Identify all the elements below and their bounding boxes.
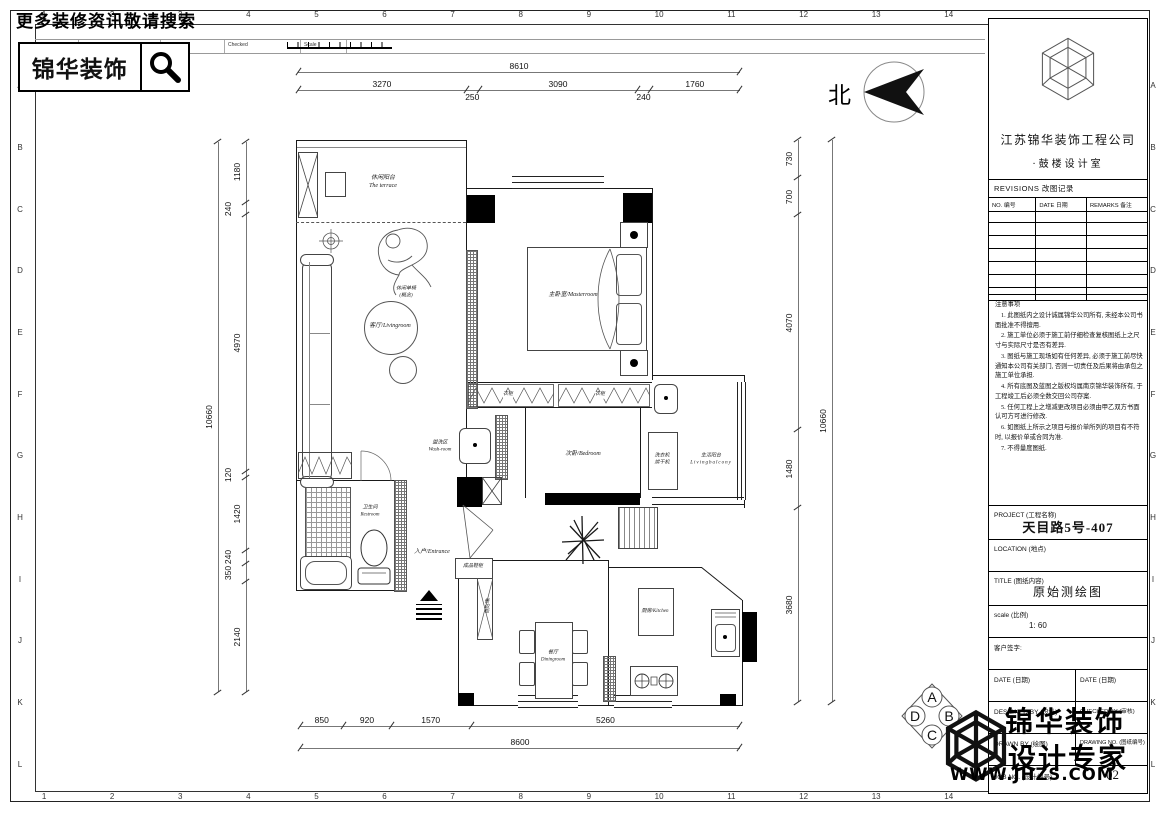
dimension-value: 5260 — [596, 715, 615, 725]
grid-ref-label: L — [1151, 760, 1155, 769]
note-item: 3. 图纸与施工现场如有任何差异, 必须于施工前尽快通知本公司有关部门, 否则一… — [995, 352, 1143, 381]
label-wardrobe: 衣柜 — [595, 392, 605, 399]
grid-ref-label: 9 — [587, 792, 591, 804]
wall-line — [466, 382, 652, 383]
dimension-value: 1180 — [232, 163, 242, 181]
dimension-segment: 1570 — [391, 720, 471, 732]
path — [715, 613, 736, 617]
grid-ref-label: K — [17, 698, 22, 707]
dining-chair — [572, 630, 588, 654]
grid-ref-label: 2 — [110, 792, 114, 804]
grid-ref-label: A — [1150, 81, 1155, 90]
grid-ref-label: 4 — [246, 792, 250, 804]
project-value: 天目路5号-407 — [989, 517, 1147, 536]
wall-hatch — [603, 656, 616, 702]
wall-line — [466, 407, 652, 408]
grid-ref-label: 8 — [518, 10, 522, 22]
dimension-value: 1570 — [421, 715, 440, 725]
sb-line — [989, 605, 1147, 606]
div: 烘干机 — [654, 460, 669, 467]
dimension-segment: 920 — [343, 720, 390, 732]
path — [1050, 47, 1086, 88]
sheet-inner-border — [35, 24, 1147, 792]
sb-line — [989, 505, 1147, 506]
rev-cell — [989, 249, 1036, 261]
revision-row — [989, 236, 1147, 249]
toilet — [354, 526, 394, 588]
span: 8610 — [510, 61, 529, 71]
svg — [631, 667, 677, 695]
grid-ref-label: 11 — [727, 792, 735, 804]
circle — [386, 234, 400, 248]
rev-cell — [1087, 210, 1147, 222]
column-fill — [458, 693, 474, 706]
dining-chair — [572, 662, 588, 686]
client-sign-label: 客户签字: — [994, 642, 1022, 652]
grid-ref-label: L — [18, 760, 22, 769]
grid-ref-label: 14 — [944, 10, 953, 22]
div: Restroom — [361, 512, 380, 519]
column-fill — [720, 694, 736, 706]
dimension-value: 3090 — [549, 79, 568, 89]
grid-ref-label: 1 — [42, 792, 46, 804]
grid-ref-label: J — [1151, 636, 1155, 645]
room-label-dining: 餐厅Diningroom — [541, 651, 565, 664]
magnifier-icon — [142, 44, 188, 90]
dimension-value: 3270 — [372, 79, 391, 89]
badge-letter-c: C — [927, 727, 937, 743]
div: 休闲单椅 — [396, 287, 416, 294]
sb-line — [989, 179, 1147, 180]
wall-line — [652, 504, 744, 505]
search-slogan: 更多装修资讯敬请搜索 — [16, 7, 196, 32]
dimension-value: 1760 — [685, 79, 704, 89]
svg — [298, 452, 352, 479]
rect — [358, 568, 390, 584]
company-cube-logo — [1036, 35, 1100, 107]
room-label-balcony: 生活阳台Livingbalcony — [690, 454, 732, 467]
room-label-entrance: 入户/Entrance — [414, 549, 450, 557]
wall-light — [296, 147, 466, 148]
sb-line — [989, 294, 1147, 295]
dimension-segment: 1180 — [240, 142, 252, 203]
dim-right-segments: 730700407014803680 — [792, 140, 804, 702]
entry-steps — [416, 604, 442, 620]
path — [399, 265, 412, 275]
dot — [723, 635, 727, 639]
dimension-value: 700 — [784, 190, 794, 204]
cabinet-unit — [618, 507, 658, 549]
column-fill — [467, 195, 495, 223]
div: 洗衣机 — [654, 454, 669, 461]
rev-cell — [989, 223, 1036, 235]
revisions-title: REVISIONS 改图记录 — [994, 183, 1074, 194]
watermark-line1: 锦华装饰 — [1005, 700, 1125, 740]
wash-basin — [459, 428, 491, 464]
grid-ref-label: 6 — [382, 792, 386, 804]
grid-ref-label: 9 — [587, 10, 591, 22]
grid-ref-label: D — [17, 266, 23, 275]
dot — [473, 443, 477, 447]
dimension-value: 1480 — [784, 460, 794, 479]
entry-steps-arrow — [420, 590, 438, 601]
path — [562, 516, 604, 564]
dim-bottom-total: 8600 — [300, 742, 740, 754]
dimension-value: 4970 — [232, 334, 242, 353]
dimension-segment: 240 — [637, 84, 649, 96]
scale-bar — [287, 42, 392, 49]
path — [398, 228, 431, 287]
entry-door-swing — [460, 500, 496, 562]
wall-line — [458, 560, 459, 706]
grid-ref-label: F — [18, 390, 23, 399]
rev-cell — [1087, 236, 1147, 248]
dim-left-segments: 1180240497012014202403502140 — [240, 142, 252, 692]
revisions-rows — [989, 210, 1147, 301]
dimension-segment: 4970 — [240, 215, 252, 471]
dim-right-total: 10660 — [826, 140, 838, 702]
svg — [700, 567, 743, 601]
dimension-value: 850 — [315, 715, 329, 725]
grid-ref-label: 12 — [799, 10, 808, 22]
seg: 8600 — [300, 742, 740, 754]
rev-cell — [1036, 236, 1087, 248]
wall-line — [525, 408, 526, 498]
wall-hatch — [495, 415, 508, 480]
rev-cell — [1087, 249, 1147, 261]
wall-line — [652, 188, 653, 380]
grid-ref-label: G — [1150, 451, 1156, 460]
grid-refs-right: ABCDEFGHIJKL — [1148, 55, 1158, 795]
dimension-value: 1420 — [232, 505, 242, 524]
dimension-segment: 3090 — [479, 84, 638, 96]
dot — [664, 396, 668, 400]
date-label-left: DATE (日期) — [994, 674, 1030, 684]
wall-line — [458, 705, 743, 706]
grid-refs-left: ABCDEFGHIJKL — [12, 55, 28, 795]
note-item: 2. 施工单位必须于施工前仔细检查复核图纸上之尺寸与实际尺寸是否有差异. — [995, 331, 1143, 351]
pillow — [616, 303, 642, 345]
sb-line — [989, 637, 1147, 638]
span: 8600 — [511, 737, 530, 747]
note-item: 1. 此图纸内之设计诚属锦华公司所有, 未经本公司书面批准不得擅用. — [995, 311, 1143, 331]
rev-cell — [989, 275, 1036, 287]
nightstand — [620, 222, 648, 248]
grid-ref-label: 8 — [518, 792, 522, 804]
restroom-door-arc — [360, 450, 392, 482]
company-logo-box: 锦华装饰 — [18, 42, 190, 92]
div: Diningroom — [541, 657, 565, 664]
gas-range — [630, 666, 678, 696]
wall-line — [652, 375, 745, 376]
shower-area — [305, 487, 351, 559]
rev-cell — [1036, 223, 1087, 235]
dimension-segment: 2140 — [240, 582, 252, 692]
dimension-segment: 730 — [792, 140, 804, 178]
line — [701, 567, 742, 600]
dimension-value: 350 — [223, 565, 233, 579]
rev-cell — [1036, 262, 1087, 274]
grid-ref-label: 14 — [944, 792, 953, 804]
dimension-segment: 250 — [466, 84, 479, 96]
grid-ref-label: K — [1150, 698, 1155, 707]
rev-cell — [1036, 249, 1087, 261]
sb-vsep — [1075, 669, 1076, 701]
master-window — [512, 176, 604, 189]
room-label-master: 主卧室/Masterroom — [548, 292, 597, 300]
rect — [651, 677, 657, 685]
span: 10660 — [818, 409, 828, 433]
wall-line — [608, 567, 702, 568]
svg — [298, 152, 318, 218]
grid-ref-label: C — [1150, 205, 1156, 214]
revision-row — [989, 262, 1147, 275]
scale-value: 1: 60 — [1029, 621, 1047, 630]
svg — [148, 50, 182, 84]
grid-ref-label: 10 — [655, 792, 664, 804]
north-arrow-icon — [860, 60, 928, 124]
kitchen-sink — [711, 609, 740, 657]
dimension-value: 4070 — [784, 313, 794, 332]
path — [361, 451, 391, 481]
kitchen-diagonal-wall — [700, 567, 743, 601]
grid-ref-label: G — [17, 451, 23, 460]
dimension-value: 920 — [360, 715, 374, 725]
scale-label: scale (比例) — [994, 609, 1028, 619]
column-fill — [742, 612, 757, 662]
terrace-cabinet — [325, 172, 346, 197]
revision-row — [989, 223, 1147, 236]
grid-ref-label: 3 — [178, 792, 182, 804]
div: (概念) — [396, 293, 416, 300]
path — [388, 256, 412, 262]
grid-ref-label: E — [1150, 328, 1155, 337]
grid-ref-label: F — [1151, 390, 1156, 399]
room-label-laundry: 洗衣机烘干机 — [654, 454, 669, 467]
kitchen-window — [614, 695, 672, 708]
ellipse — [361, 530, 387, 566]
dimension-value: 2140 — [232, 627, 242, 646]
grid-ref-label: J — [18, 636, 22, 645]
dimension-segment: 3270 — [298, 84, 466, 96]
company-name: 江苏锦华装饰工程公司 — [989, 131, 1147, 148]
sb-line — [989, 669, 1147, 670]
sb-line — [989, 539, 1147, 540]
dim-bottom-segments: 85092015705260 — [300, 720, 740, 732]
span: 10660 — [204, 405, 214, 429]
pillow — [616, 254, 642, 296]
watermark-url: WWW.JHZS.COM — [950, 765, 1114, 784]
rev-cell — [1087, 275, 1147, 287]
title-block-sidebar: 江苏锦华装饰工程公司 ·鼓楼设计室 REVISIONS 改图记录 NO. 编号D… — [988, 18, 1148, 794]
drawing-sheet: 1234567891011121314 1234567891011121314 … — [0, 0, 1158, 813]
grid-ref-label: 11 — [727, 10, 735, 22]
ceiling-crosshair — [319, 229, 343, 253]
dimension-segment: 1420 — [240, 478, 252, 551]
balcony-window — [737, 382, 746, 500]
grid-ref-label: 5 — [314, 792, 318, 804]
note-item: 7. 不得量度图纸. — [995, 444, 1143, 454]
sofa — [302, 262, 332, 480]
room-label-bedroom: 次卧/Bedroom — [565, 451, 600, 459]
path — [598, 249, 610, 349]
dining-chair — [519, 630, 535, 654]
div: Wash-room — [429, 447, 452, 454]
revision-row — [989, 275, 1147, 288]
grid-ref-label: I — [19, 575, 21, 584]
polygon — [864, 69, 924, 115]
terrace-column-xbox — [298, 152, 318, 218]
plant — [556, 508, 608, 568]
dimension-value: 120 — [223, 468, 233, 482]
wall-light — [309, 333, 330, 334]
dining-chair — [519, 662, 535, 686]
room-label-kitchen: 厨房/Kitchen — [642, 609, 669, 616]
dimension-segment: 700 — [792, 178, 804, 215]
svg — [556, 508, 608, 568]
nightstand — [620, 350, 648, 376]
div: 休闲阳台 — [369, 175, 397, 183]
location-label: LOCATION (地点) — [994, 543, 1046, 553]
badge-letter-a: A — [927, 689, 937, 705]
dimension-segment: 3680 — [792, 508, 804, 702]
grid-ref-label: 7 — [450, 792, 454, 804]
grid-ref-label: 13 — [872, 10, 881, 22]
svg — [319, 229, 343, 253]
grid-ref-label: C — [17, 205, 23, 214]
rev-cell — [1036, 275, 1087, 287]
grid-ref-label: D — [1150, 266, 1156, 275]
grid-ref-label: I — [1152, 575, 1154, 584]
label-sideboard: 餐边柜 — [482, 598, 489, 613]
grid-ref-label: 7 — [450, 10, 454, 22]
g — [562, 516, 604, 564]
wall-line — [296, 140, 466, 141]
grid-ref-label: 5 — [314, 10, 318, 22]
grid-ref-label: B — [1150, 143, 1155, 152]
revision-row — [989, 210, 1147, 223]
dimension-value: 730 — [784, 152, 794, 166]
wall-hatch — [394, 480, 407, 592]
rev-cell — [989, 210, 1036, 222]
side-table-circle — [389, 356, 417, 384]
note-item: 4. 所有底图及蓝图之版权均属南京锦华装饰所有, 于工程竣工后必须全数交回公司存… — [995, 382, 1143, 402]
grid-ref-label: 10 — [655, 10, 664, 22]
tv-cabinet — [298, 452, 352, 479]
path — [463, 505, 493, 558]
div — [305, 561, 347, 585]
seg: 8610 — [298, 66, 740, 78]
notes-title: 注意事项 — [995, 300, 1143, 310]
dot — [630, 231, 638, 239]
room-label-chair: 休闲单椅(概念) — [396, 287, 416, 300]
rev-cell — [989, 236, 1036, 248]
svg — [354, 526, 394, 588]
wall-line — [640, 408, 641, 498]
grid-ref-label: H — [17, 513, 23, 522]
wall-light — [309, 262, 310, 478]
title-value: 原始测绘图 — [989, 583, 1147, 600]
rev-cell — [1036, 210, 1087, 222]
small-basin — [654, 384, 678, 414]
dimension-segment: 1480 — [792, 430, 804, 508]
bathtub — [300, 556, 352, 590]
label-shoe-cabinet: 成品鞋柜 — [463, 564, 483, 571]
svg — [360, 450, 392, 482]
g — [378, 228, 431, 295]
dim-top-segments: 327025030902401760 — [298, 84, 740, 96]
wall-line — [296, 140, 297, 590]
div: Livingbalcony — [690, 460, 732, 467]
dimension-segment: 5260 — [471, 720, 740, 732]
note-item: 5. 任何工程上之增减更改项目必须由甲乙双方书面认可方可进行修改. — [995, 403, 1143, 423]
dimension-segment: 850 — [300, 720, 343, 732]
note-item: 6. 如图纸上所示之项目与报价单所列的项目有不符时, 以报价单或合同为准. — [995, 423, 1143, 443]
rev-cell — [1087, 223, 1147, 235]
grid-ref-label: E — [17, 328, 22, 337]
svg — [860, 60, 928, 124]
svg — [460, 500, 496, 562]
notes-list: 注意事项 1. 此图纸内之设计诚属锦华公司所有, 未经本公司书面批准不得擅用.2… — [995, 300, 1143, 454]
dimension-segment: 4070 — [792, 215, 804, 430]
dimension-value: 3680 — [784, 596, 794, 615]
grid-refs-bottom: 1234567891011121314 — [10, 792, 985, 804]
seg: 10660 — [826, 140, 838, 702]
grid-ref-label: 12 — [799, 792, 808, 804]
wall-light — [309, 404, 330, 405]
g — [1042, 38, 1093, 99]
dimension-value: 240 — [636, 92, 650, 102]
sofa-armrest — [300, 254, 334, 266]
path — [298, 457, 352, 474]
dim-top-total: 8610 — [298, 66, 740, 78]
grid-ref-label: 6 — [382, 10, 386, 22]
date-label-right: DATE (日期) — [1080, 674, 1116, 684]
rev-cell — [1087, 262, 1147, 274]
div: The terrace — [369, 183, 397, 191]
room-label-restroom: 卫生间Restroom — [361, 506, 380, 519]
column-fill — [623, 193, 652, 223]
grid-ref-label: H — [1150, 513, 1156, 522]
label-wardrobe: 衣柜 — [503, 392, 513, 399]
badge-letter-d: D — [910, 708, 920, 724]
dim-left-total: 10660 — [212, 142, 224, 692]
revision-row — [989, 249, 1147, 262]
dot — [630, 359, 638, 367]
svg — [712, 610, 739, 624]
svg — [1036, 35, 1100, 107]
dimension-value: 240 — [223, 550, 233, 564]
seg: 10660 — [212, 142, 224, 692]
room-label-terrace: 休闲阳台The terrace — [369, 175, 397, 191]
room-label-wash: 盥洗区Wash-room — [429, 441, 452, 454]
grid-ref-label: B — [17, 143, 22, 152]
dimension-value: 240 — [223, 202, 233, 216]
rev-cell — [989, 262, 1036, 274]
cell — [465, 40, 985, 53]
sb-line — [989, 571, 1147, 572]
column-fill — [545, 493, 640, 505]
room-label-living: 客厅/Livingroom — [369, 323, 410, 331]
wall-line — [652, 497, 744, 498]
grid-ref-label: 13 — [872, 792, 881, 804]
north-label: 北 — [828, 76, 851, 110]
line — [168, 70, 178, 80]
company-department: ·鼓楼设计室 — [989, 155, 1147, 170]
grid-ref-label: 4 — [246, 10, 250, 22]
wall-line — [296, 590, 406, 591]
dimension-segment: 1760 — [650, 84, 740, 96]
